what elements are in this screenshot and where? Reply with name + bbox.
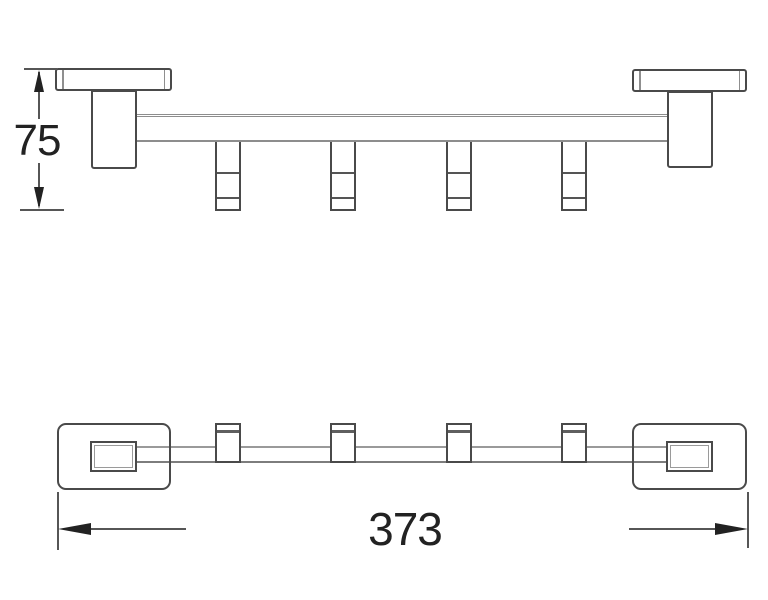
arrow-right-icon — [715, 523, 748, 535]
hook-plan — [330, 423, 356, 463]
arrow-down-icon — [34, 187, 44, 209]
hook-plan — [446, 423, 472, 463]
left-mount-post-front — [91, 90, 137, 169]
right-mount-cap-front — [632, 69, 747, 92]
cap-edge-line — [164, 70, 166, 89]
dimension-line-right-segment — [629, 528, 715, 530]
cap-edge-line — [739, 71, 741, 90]
cap-edge-line — [639, 71, 641, 90]
right-mount-plate-plan — [632, 423, 747, 490]
left-mount-cap-front — [55, 68, 172, 91]
technical-drawing-canvas: 75 373 — [0, 0, 768, 600]
bar-front-view — [136, 114, 668, 142]
dimension-value-length: 373 — [350, 506, 460, 552]
dimension-line-left-segment — [88, 528, 186, 530]
arrow-left-icon — [58, 523, 91, 535]
hook-front — [330, 142, 356, 211]
extension-line-right — [747, 492, 749, 548]
hook-front — [446, 142, 472, 211]
extension-line-left — [57, 492, 59, 550]
extension-line-bottom — [20, 209, 64, 211]
left-mount-plate-plan — [57, 423, 171, 490]
arrow-up-icon — [34, 70, 44, 92]
hook-plan — [561, 423, 587, 463]
hook-plan — [215, 423, 241, 463]
hook-front — [561, 142, 587, 211]
right-mount-post-front — [667, 91, 713, 168]
cap-edge-line — [62, 70, 64, 89]
hook-front — [215, 142, 241, 211]
dimension-value-height: 75 — [8, 119, 66, 163]
